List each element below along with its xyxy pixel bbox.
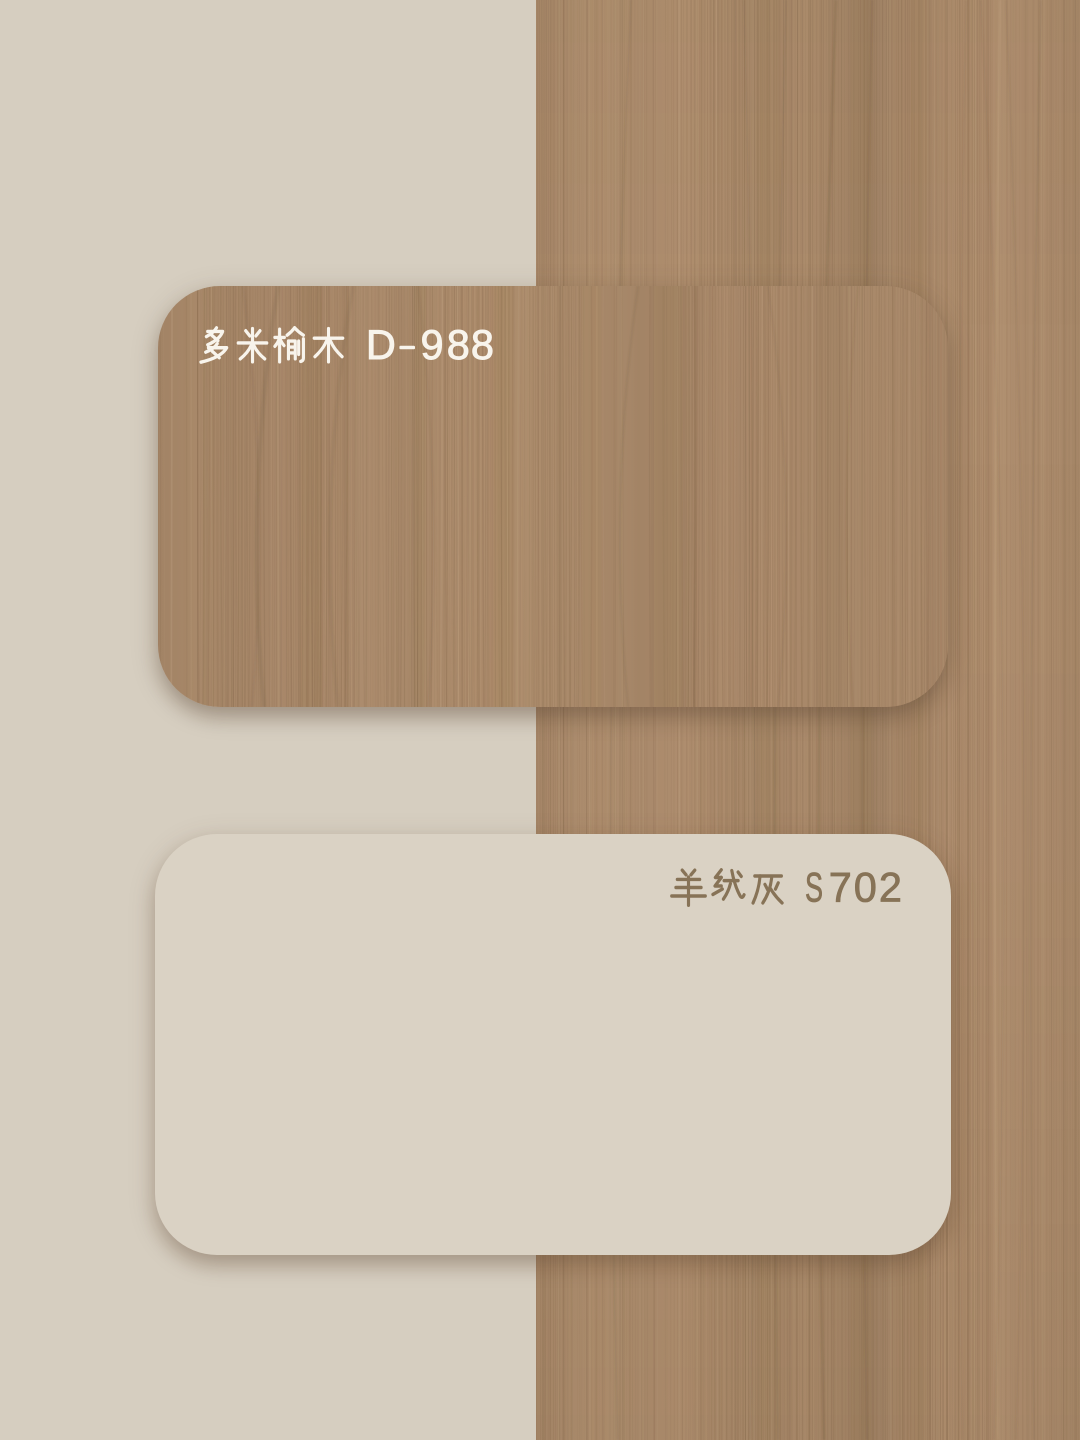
svg-text:S: S	[805, 863, 823, 910]
svg-text:D988: D988	[366, 321, 494, 368]
svg-text:702: 702	[829, 863, 902, 910]
